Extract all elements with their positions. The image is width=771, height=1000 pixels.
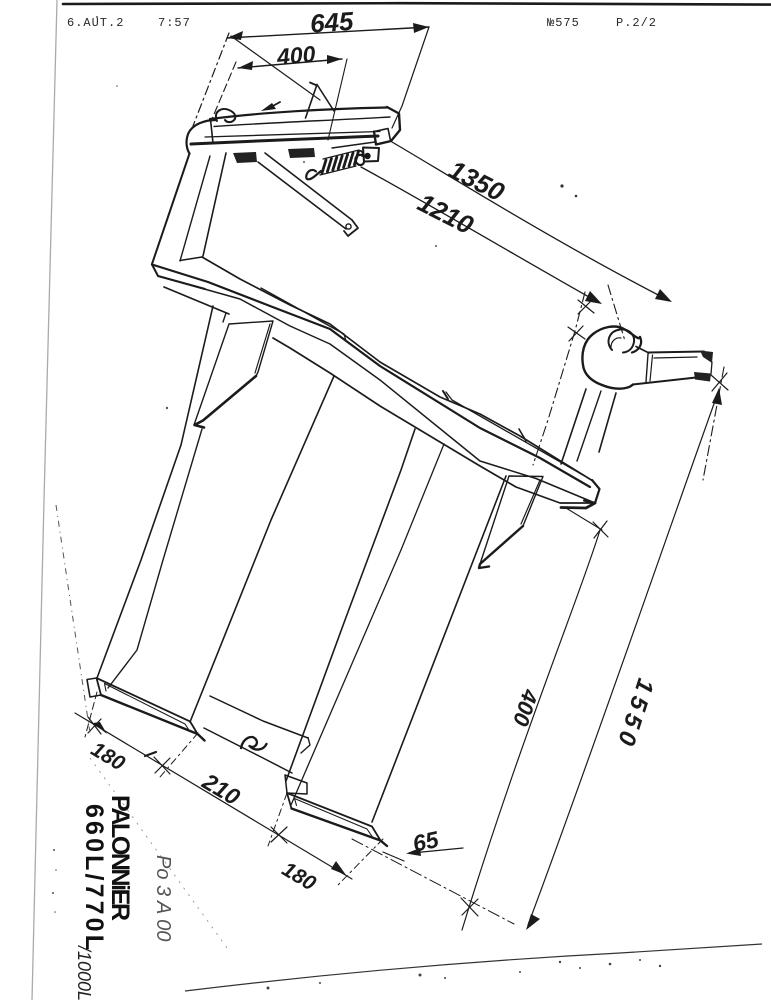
svg-text:№575: №575 bbox=[547, 16, 580, 30]
svg-text:645: 645 bbox=[309, 6, 355, 39]
svg-text:P.2/2: P.2/2 bbox=[616, 16, 657, 30]
svg-text:Po 3 A 00: Po 3 A 00 bbox=[152, 855, 174, 941]
svg-text:6.AUT.2: 6.AUT.2 bbox=[67, 16, 124, 30]
svg-text:1210: 1210 bbox=[413, 187, 479, 240]
svg-text:660L/770L: 660L/770L bbox=[80, 804, 108, 950]
svg-text:180: 180 bbox=[278, 858, 320, 896]
svg-text:1350: 1350 bbox=[444, 154, 510, 207]
svg-text:PALONNiER: PALONNiER bbox=[106, 795, 134, 921]
svg-text:7:57: 7:57 bbox=[158, 16, 191, 30]
svg-text:180: 180 bbox=[87, 738, 129, 776]
svg-text:400: 400 bbox=[275, 41, 317, 70]
svg-text:1550: 1550 bbox=[611, 675, 659, 753]
svg-text:210: 210 bbox=[197, 768, 244, 811]
svg-text:400: 400 bbox=[508, 686, 544, 730]
svg-text:/1000L: /1000L bbox=[74, 944, 94, 1000]
